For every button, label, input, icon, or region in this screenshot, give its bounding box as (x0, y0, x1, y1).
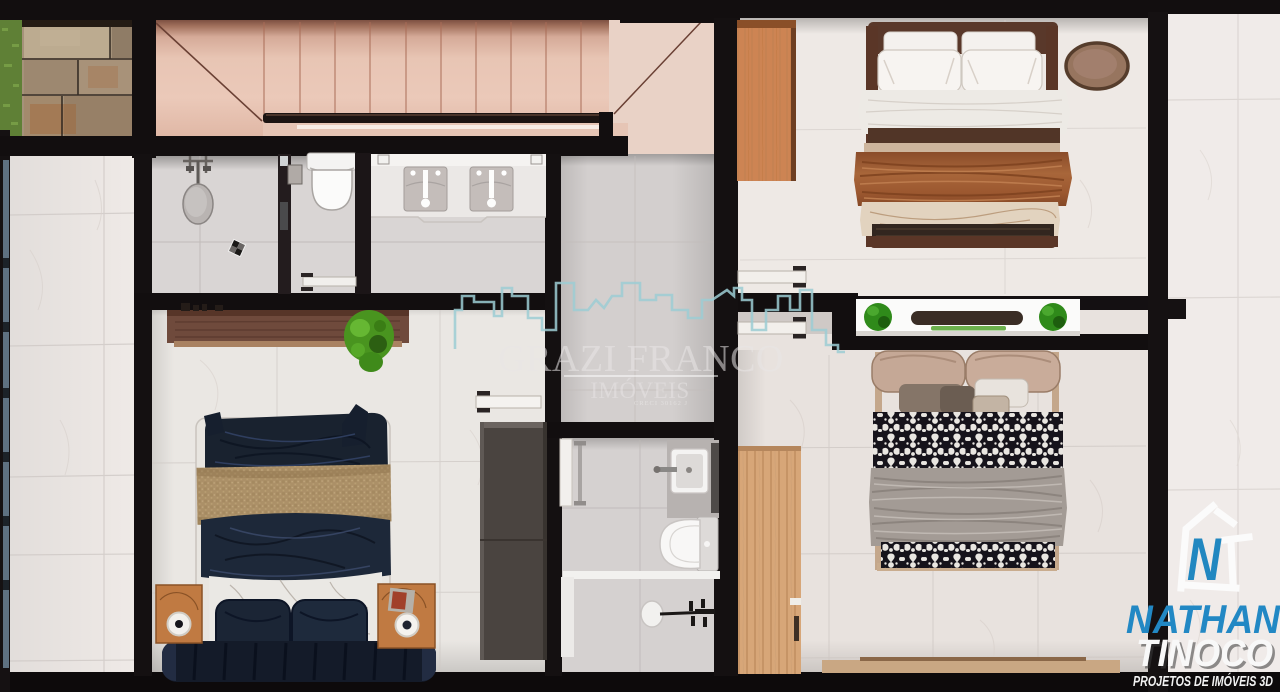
svg-text:TINOCO: TINOCO (1136, 633, 1273, 675)
svg-text:CRECI 30162 J: CRECI 30162 J (634, 400, 688, 407)
svg-text:PROJETOS DE IMÓVEIS 3D: PROJETOS DE IMÓVEIS 3D (1133, 672, 1273, 690)
svg-text:GRAZI FRANCO: GRAZI FRANCO (498, 338, 784, 380)
svg-text:N: N (1187, 526, 1222, 593)
